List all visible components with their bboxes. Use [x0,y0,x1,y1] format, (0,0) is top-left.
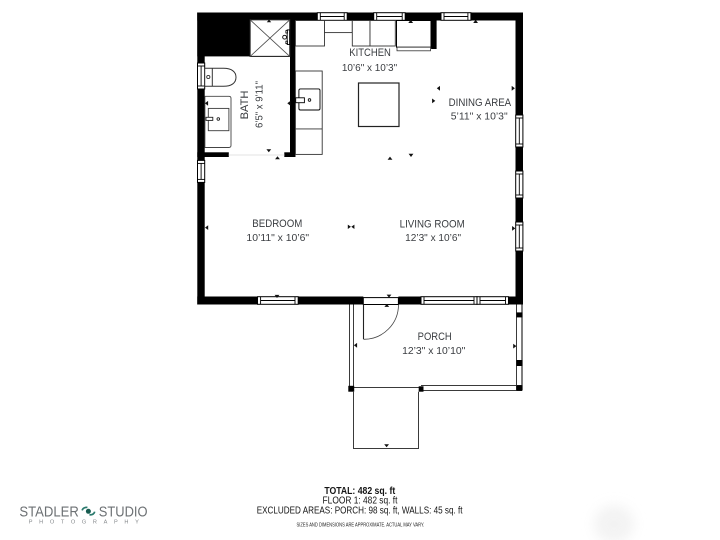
svg-text:DINING AREA: DINING AREA [449,97,512,109]
svg-text:EXCLUDED AREAS: PORCH: 98 sq.: EXCLUDED AREAS: PORCH: 98 sq. ft, WALLS:… [257,506,463,517]
svg-text:BATH: BATH [239,91,251,120]
svg-text:5’11" x 10’3": 5’11" x 10’3" [451,112,508,123]
svg-text:10’11" x 10’6": 10’11" x 10’6" [246,233,309,244]
svg-text:LIVING ROOM: LIVING ROOM [400,218,465,230]
svg-text:12’3" x 10’10": 12’3" x 10’10" [402,346,466,357]
svg-text:SIZES AND DIMENSIONS ARE APPRO: SIZES AND DIMENSIONS ARE APPROXIMATE. AC… [297,522,425,528]
svg-text:STUDIO: STUDIO [99,504,148,520]
svg-text:6’5" x 9’11": 6’5" x 9’11" [254,81,265,128]
svg-text:10’6" x 10’3": 10’6" x 10’3" [342,63,398,74]
svg-text:12’3" x 10’6": 12’3" x 10’6" [405,233,461,244]
svg-text:BEDROOM: BEDROOM [252,218,302,230]
svg-text:KITCHEN: KITCHEN [349,47,391,59]
svg-text:STADLER: STADLER [19,504,78,520]
svg-text:PORCH: PORCH [418,331,452,343]
